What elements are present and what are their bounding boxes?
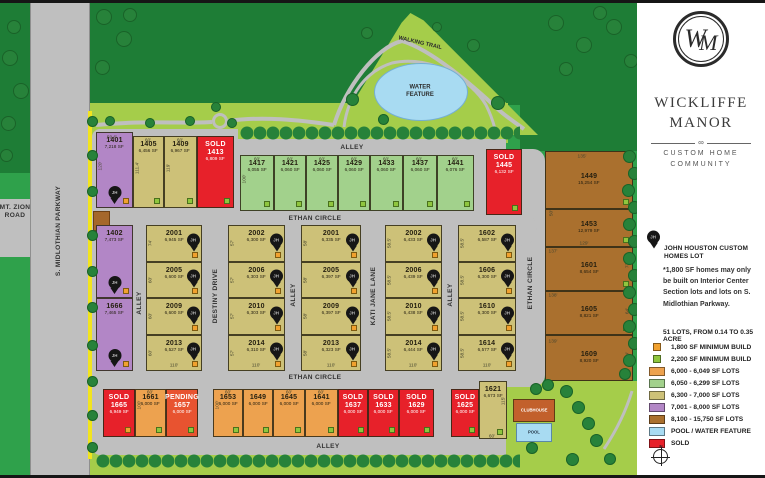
lot-square-footage: 6,577 SF bbox=[477, 348, 496, 353]
lot-2005[interactable]: 20056,600 SFJH bbox=[146, 262, 202, 298]
community-title-line1: WICKLIFFE bbox=[637, 95, 765, 112]
tree-icon bbox=[87, 266, 98, 277]
lot-number: 1653 bbox=[220, 394, 236, 402]
tree-icon bbox=[548, 15, 564, 31]
lot-dimension-label: 74' bbox=[147, 240, 152, 246]
min-build-marker-green bbox=[393, 201, 399, 207]
lot-dimension-label: 58' bbox=[302, 313, 307, 319]
lot-square-footage: 6,967 SF bbox=[171, 149, 190, 154]
lot-square-footage: 6,300 SF bbox=[477, 275, 496, 280]
john-houston-pin-icon: JH bbox=[187, 306, 200, 324]
lot-number: 2001 bbox=[323, 230, 339, 238]
min-build-marker-green bbox=[358, 427, 364, 433]
lot-1421[interactable]: 14216,060 SF bbox=[274, 155, 306, 211]
lot-1625[interactable]: SOLD16256,000 SF bbox=[451, 389, 479, 437]
legend-swatch bbox=[649, 379, 665, 388]
min-build-marker-green bbox=[464, 201, 470, 207]
min-build-marker-green bbox=[296, 201, 302, 207]
john-houston-pin-icon: JH bbox=[427, 270, 440, 288]
pin-tail bbox=[504, 245, 512, 251]
street-label: ETHAN CIRCLE bbox=[289, 214, 342, 221]
tree-icon bbox=[87, 150, 98, 161]
legend-item: 6,050 - 6,299 SF LOTS bbox=[649, 377, 761, 389]
pin-tail bbox=[504, 355, 512, 361]
lot-square-footage: 8,920 SF bbox=[579, 359, 598, 364]
street-label: ETHAN CIRCLE bbox=[289, 373, 342, 380]
john-houston-pin-icon: JH bbox=[346, 233, 359, 251]
lot-square-footage: 6,000 SF bbox=[248, 402, 267, 407]
legend-item-label: 6,300 - 7,000 SF LOTS bbox=[671, 392, 740, 399]
lot-2006[interactable]: 20066,439 SFJH bbox=[385, 262, 442, 298]
tree-icon bbox=[432, 22, 442, 32]
lot-square-footage: 6,000 SF bbox=[407, 410, 426, 415]
lot-number: 2014 bbox=[248, 340, 264, 348]
wickliffe-manor-site-plan: WATER FEATURE WALKING TRAIL CLUBHOUSE PO… bbox=[0, 0, 765, 478]
lot-2006[interactable]: 20066,303 SFJH bbox=[228, 262, 285, 298]
lot-square-footage: 6,303 SF bbox=[247, 275, 266, 280]
min-build-marker-orange bbox=[275, 252, 281, 258]
min-build-marker-orange bbox=[506, 288, 512, 294]
min-build-marker-green bbox=[187, 198, 193, 204]
forest-area-right bbox=[520, 99, 637, 151]
lot-1433[interactable]: 14336,060 SF bbox=[370, 155, 403, 211]
lot-number: 2014 bbox=[405, 340, 421, 348]
lot-dimension-label: 58.5' bbox=[386, 275, 391, 285]
lot-1453[interactable]: 145312,979 SF bbox=[545, 209, 633, 247]
lot-status-label: SOLD bbox=[406, 394, 427, 402]
lot-1413[interactable]: SOLD14136,809 SF bbox=[197, 136, 234, 208]
lot-square-footage: 6,444 SF bbox=[404, 348, 423, 353]
lot-number: 2010 bbox=[405, 303, 421, 311]
tree-icon bbox=[87, 340, 98, 351]
lot-1402[interactable]: 14027,473 SFJH bbox=[96, 225, 133, 298]
min-build-marker-orange bbox=[125, 427, 131, 433]
lot-dimension-label: 58' bbox=[302, 350, 307, 356]
min-build-marker-green bbox=[497, 429, 503, 435]
tree-icon bbox=[0, 149, 13, 162]
min-build-marker-green bbox=[427, 201, 433, 207]
lot-1649[interactable]: 16496,000 SF bbox=[243, 389, 273, 437]
lot-square-footage: 6,060 SF bbox=[344, 168, 363, 173]
lot-number: 1649 bbox=[250, 394, 266, 402]
tree-icon bbox=[628, 201, 638, 214]
tree-icon bbox=[185, 116, 195, 126]
min-build-marker-orange bbox=[351, 361, 357, 367]
lot-2010[interactable]: 20106,303 SFJH bbox=[228, 298, 285, 335]
water-feature-label: WATER FEATURE bbox=[401, 83, 438, 98]
min-build-marker-orange bbox=[506, 252, 512, 258]
tree-icon bbox=[1, 116, 16, 131]
tree-icon bbox=[628, 303, 638, 316]
legend-swatch bbox=[649, 391, 665, 400]
tree-icon bbox=[491, 96, 505, 110]
lot-2002[interactable]: 20026,433 SFJH bbox=[385, 225, 442, 262]
lot-dimension-label: 50' bbox=[548, 210, 553, 216]
lot-square-footage: 6,000 SF bbox=[141, 402, 160, 407]
min-build-marker-orange bbox=[275, 325, 281, 331]
tree-icon bbox=[623, 218, 636, 231]
lot-dimension-label: 58.5' bbox=[386, 348, 391, 358]
lot-dimension-label: 58.5' bbox=[386, 311, 391, 321]
legend-item: SOLD bbox=[649, 437, 761, 449]
lot-2009[interactable]: 20096,600 SFJH bbox=[146, 298, 202, 335]
lot-1666[interactable]: 16667,465 SFJH bbox=[96, 298, 133, 371]
lot-dimension-label: 58.5' bbox=[459, 348, 464, 358]
street-label: KATI JANE LANE bbox=[369, 267, 376, 325]
clubhouse: CLUBHOUSE bbox=[513, 399, 555, 422]
lot-dimension-label: 57' bbox=[229, 313, 234, 319]
lot-square-footage: 6,587 SF bbox=[477, 238, 496, 243]
john-houston-pin-icon: JH bbox=[108, 349, 121, 367]
lot-1429[interactable]: 14296,060 SF bbox=[338, 155, 370, 211]
lot-1629[interactable]: SOLD16296,000 SF bbox=[399, 389, 434, 437]
min-build-marker-green bbox=[154, 198, 160, 204]
tree-icon bbox=[227, 118, 237, 128]
pin-tail bbox=[273, 355, 281, 361]
lot-square-footage: 6,132 SF bbox=[494, 170, 513, 175]
lot-1645[interactable]: 16456,000 SF bbox=[273, 389, 305, 437]
lot-dimension-label: 110' bbox=[409, 362, 418, 367]
legend-item-label: 1,800 SF MINIMUM BUILD bbox=[671, 344, 751, 351]
tree-icon bbox=[622, 184, 635, 197]
lot-number: 2001 bbox=[166, 230, 182, 238]
lot-number: 1661 bbox=[142, 394, 158, 402]
lot-square-footage: 8,821 SF bbox=[579, 314, 598, 319]
lot-dimension-label: 58.5' bbox=[459, 275, 464, 285]
tree-icon bbox=[87, 186, 98, 197]
min-build-marker-orange bbox=[432, 252, 438, 258]
lot-2001[interactable]: 20016,945 SFJH bbox=[146, 225, 202, 262]
lot-square-footage: 6,076 SF bbox=[446, 168, 465, 173]
john-houston-pin-icon: JH bbox=[427, 306, 440, 324]
lot-1449[interactable]: 144915,254 SF bbox=[545, 151, 633, 209]
lot-1661[interactable]: 16616,000 SF bbox=[135, 389, 166, 437]
min-build-marker-orange bbox=[192, 288, 198, 294]
tree-icon bbox=[87, 410, 98, 421]
lot-number: 2009 bbox=[166, 303, 182, 311]
street-label: MT. ZION bbox=[0, 203, 30, 210]
lot-1653[interactable]: 16536,000 SF bbox=[213, 389, 243, 437]
tree-icon bbox=[542, 379, 554, 391]
lot-2001[interactable]: 20016,335 SFJH bbox=[301, 225, 361, 262]
lot-square-footage: 15,254 SF bbox=[578, 181, 600, 186]
lot-1601[interactable]: 16018,654 SF bbox=[545, 247, 633, 291]
lot-dimension-label: 100' bbox=[136, 401, 141, 410]
lot-dimension-label: 110' bbox=[252, 362, 261, 367]
lot-1610[interactable]: 16106,300 SFJH bbox=[458, 298, 516, 335]
lot-2009[interactable]: 20096,397 SFJH bbox=[301, 298, 361, 335]
min-build-marker-green bbox=[512, 205, 518, 211]
lot-square-footage: 6,000 SF bbox=[343, 410, 362, 415]
tree-icon bbox=[593, 6, 607, 20]
street-label: ALLEY bbox=[289, 283, 296, 306]
lot-square-footage: 6,438 SF bbox=[404, 311, 423, 316]
pin-tail bbox=[349, 318, 357, 324]
legend-item: 8,100 - 15,750 SF LOTS bbox=[649, 413, 761, 425]
community-subtitle-line1: CUSTOM HOME bbox=[637, 149, 765, 160]
john-houston-pin-icon: JH bbox=[187, 343, 200, 361]
lot-2005[interactable]: 20056,397 SFJH bbox=[301, 262, 361, 298]
pin-tail bbox=[430, 282, 438, 288]
lot-dimension-label: 60' bbox=[287, 156, 293, 161]
tree-icon bbox=[87, 230, 98, 241]
street-label: ALLEY bbox=[135, 291, 142, 314]
lot-1445[interactable]: SOLD14456,132 SF bbox=[486, 149, 522, 215]
legend-item-label: SOLD bbox=[671, 440, 689, 447]
pin-tail bbox=[430, 318, 438, 324]
lot-square-footage: 6,300 SF bbox=[477, 311, 496, 316]
john-houston-pin-icon: JH bbox=[346, 270, 359, 288]
lot-dimension-label: 58.5' bbox=[459, 311, 464, 321]
min-build-marker-orange bbox=[351, 325, 357, 331]
lot-square-footage: 8,654 SF bbox=[579, 270, 598, 275]
tree-icon bbox=[95, 60, 110, 75]
lot-square-footage: 6,527 SF bbox=[164, 348, 183, 353]
lot-dimension-label: 60' bbox=[319, 156, 325, 161]
min-build-marker-orange bbox=[123, 198, 129, 204]
pin-tail bbox=[430, 355, 438, 361]
min-build-marker-green bbox=[328, 427, 334, 433]
lot-dimension-label: 58' bbox=[302, 277, 307, 283]
pin-tail bbox=[504, 318, 512, 324]
pin-tail bbox=[190, 355, 198, 361]
tree-icon bbox=[96, 9, 112, 25]
lot-square-footage: 6,000 SF bbox=[455, 410, 474, 415]
min-build-marker-orange bbox=[506, 325, 512, 331]
lot-dimension-label: 60' bbox=[351, 156, 357, 161]
tree-icon bbox=[628, 337, 638, 350]
tree-icon bbox=[346, 93, 359, 106]
john-houston-pin-icon: JH bbox=[270, 306, 283, 324]
lot-number: 2005 bbox=[323, 267, 339, 275]
legend: 1,800 SF MINIMUM BUILD2,200 SF MINIMUM B… bbox=[649, 341, 761, 449]
lot-square-footage: 6,060 SF bbox=[280, 168, 299, 173]
lot-status-label: SOLD bbox=[455, 394, 476, 402]
lot-dimension-label: 58.5' bbox=[386, 238, 391, 248]
lot-dimension-label: 60' bbox=[147, 350, 152, 356]
pin-tail bbox=[111, 288, 119, 294]
lot-1641[interactable]: 16416,000 SF bbox=[305, 389, 338, 437]
min-build-marker-green bbox=[224, 198, 230, 204]
lot-number: 1605 bbox=[581, 306, 597, 314]
tree-icon bbox=[623, 354, 636, 367]
lot-square-footage: 6,310 SF bbox=[247, 348, 266, 353]
lot-number: 2009 bbox=[323, 303, 339, 311]
lot-square-footage: 6,397 SF bbox=[321, 275, 340, 280]
lot-number: 1449 bbox=[581, 173, 597, 181]
street-label: ALLEY bbox=[316, 442, 339, 449]
pin-tail bbox=[430, 245, 438, 251]
lot-number: 1614 bbox=[479, 340, 495, 348]
min-build-marker-orange bbox=[192, 252, 198, 258]
pin-tail bbox=[349, 355, 357, 361]
legend-item: 6,300 - 7,000 SF LOTS bbox=[649, 389, 761, 401]
tree-icon bbox=[624, 54, 637, 68]
lot-dimension-label: 57' bbox=[229, 350, 234, 356]
tree-icon bbox=[623, 320, 636, 333]
john-houston-pin-icon: JH bbox=[501, 306, 514, 324]
lot-1637[interactable]: SOLD16376,000 SF bbox=[338, 389, 368, 437]
lot-status-label: SOLD bbox=[494, 154, 515, 162]
lot-dimension-label: 137' bbox=[549, 248, 558, 253]
john-houston-pin-icon: JH bbox=[108, 276, 121, 294]
tree-icon bbox=[13, 83, 29, 99]
legend-pin-row: JH JOHN HOUSTON CUSTOM HOMES LOT bbox=[647, 241, 765, 262]
tree-icon bbox=[604, 453, 616, 465]
min-build-marker-green bbox=[188, 427, 194, 433]
lot-dimension-label: 57' bbox=[229, 240, 234, 246]
min-build-marker-green bbox=[295, 427, 301, 433]
pool: POOL bbox=[516, 423, 552, 442]
lot-1425[interactable]: 14256,060 SF bbox=[306, 155, 338, 211]
lot-1605[interactable]: 16058,821 SF bbox=[545, 291, 633, 335]
monogram-w: W bbox=[685, 24, 707, 54]
lot-square-footage: 6,397 SF bbox=[321, 311, 340, 316]
community-subtitle-line2: COMMUNITY bbox=[637, 160, 765, 171]
lot-dimension-label: 138' bbox=[549, 292, 558, 297]
lot-square-footage: 6,300 SF bbox=[247, 238, 266, 243]
tree-icon bbox=[606, 19, 622, 35]
lot-2010[interactable]: 20106,438 SFJH bbox=[385, 298, 442, 335]
min-build-marker-green bbox=[360, 201, 366, 207]
lot-1621[interactable]: 16216,673 SF bbox=[479, 381, 507, 439]
lot-square-footage: 7,218 SF bbox=[105, 145, 124, 150]
lot-status-label: SOLD bbox=[109, 394, 130, 402]
legend-swatch bbox=[649, 427, 665, 436]
lot-1657[interactable]: PENDING16576,000 SF bbox=[166, 389, 198, 437]
info-panel: W M WICKLIFFE MANOR ∞ CUSTOM HOME COMMUN… bbox=[637, 3, 765, 475]
trail-loop bbox=[212, 113, 228, 129]
legend-item: 6,000 - 6,049 SF LOTS bbox=[649, 365, 761, 377]
min-build-marker-orange bbox=[351, 288, 357, 294]
pin-tail bbox=[190, 318, 198, 324]
john-houston-pin-icon: JH bbox=[187, 233, 200, 251]
pin-tail bbox=[349, 245, 357, 251]
lot-1602[interactable]: 16026,587 SFJH bbox=[458, 225, 516, 262]
min-build-marker-orange bbox=[123, 361, 129, 367]
lot-number: 1610 bbox=[479, 303, 495, 311]
lot-square-footage: 6,000 SF bbox=[312, 402, 331, 407]
monogram-m: M bbox=[699, 30, 717, 56]
min-build-marker-orange bbox=[123, 288, 129, 294]
tree-icon bbox=[105, 116, 115, 126]
lot-number: 1402 bbox=[106, 230, 122, 238]
street-label: ETHAN CIRCLE bbox=[526, 257, 533, 310]
lot-number: 1641 bbox=[313, 394, 329, 402]
lot-square-footage: 6,809 SF bbox=[206, 157, 225, 162]
john-houston-pin-icon: JH bbox=[501, 233, 514, 251]
lot-dimension-label: 100' bbox=[214, 401, 219, 410]
lot-number: 2006 bbox=[405, 267, 421, 275]
lot-dimension-label: 60' bbox=[383, 156, 389, 161]
lot-1606[interactable]: 16066,300 SFJH bbox=[458, 262, 516, 298]
tree-icon bbox=[559, 62, 573, 76]
lot-dimension-label: 110' bbox=[170, 362, 179, 367]
legend-swatch bbox=[649, 415, 665, 424]
legend-item: POOL / WATER FEATURE bbox=[649, 425, 761, 437]
john-houston-pin-icon: JH bbox=[647, 231, 660, 249]
john-houston-pin-icon: JH bbox=[108, 186, 121, 204]
build-restriction-note: *1,800 SF homes may only be built on Int… bbox=[663, 265, 761, 310]
tree-icon bbox=[530, 383, 542, 395]
lot-dimension-label: 60' bbox=[225, 389, 231, 394]
lot-dimension-label: 60' bbox=[177, 137, 183, 142]
min-build-marker-orange bbox=[432, 325, 438, 331]
lot-square-footage: 6,949 SF bbox=[109, 410, 128, 415]
lot-dimension-label: 60' bbox=[147, 277, 152, 283]
lot-number: 1621 bbox=[485, 386, 501, 394]
lot-1437[interactable]: 14376,060 SF bbox=[403, 155, 437, 211]
tree-icon bbox=[590, 434, 603, 447]
lot-dimension-label: 59.6' bbox=[107, 134, 117, 139]
min-build-marker-green bbox=[389, 427, 395, 433]
lot-1441[interactable]: 14416,076 SF bbox=[437, 155, 474, 211]
lot-dimension-label: 100' bbox=[241, 175, 246, 184]
lot-number: 1645 bbox=[281, 394, 297, 402]
lot-number: 1666 bbox=[106, 303, 122, 311]
min-build-marker-green bbox=[424, 427, 430, 433]
lot-1665[interactable]: SOLD16656,949 SF bbox=[103, 389, 135, 437]
lot-dimension-label: 60' bbox=[254, 156, 260, 161]
lot-number: 1602 bbox=[479, 230, 495, 238]
legend-item: 7,001 - 8,000 SF LOTS bbox=[649, 401, 761, 413]
tree-icon bbox=[619, 368, 631, 380]
lot-dimension-label: 60' bbox=[147, 389, 153, 394]
lot-dimension-label: 60' bbox=[286, 389, 292, 394]
bush-row-bottom bbox=[96, 454, 520, 468]
lot-square-footage: 6,600 SF bbox=[164, 275, 183, 280]
lot-square-footage: 12,979 SF bbox=[578, 229, 600, 234]
lot-dimension-label: 115' bbox=[500, 397, 505, 406]
min-build-marker-green bbox=[469, 427, 475, 433]
lot-number: 2010 bbox=[248, 303, 264, 311]
tree-icon bbox=[145, 118, 155, 128]
lot-square-footage: 6,000 SF bbox=[279, 402, 298, 407]
lot-dimension-label: 119' bbox=[165, 164, 170, 173]
lot-status-label: SOLD bbox=[205, 141, 226, 149]
tree-icon bbox=[378, 114, 389, 125]
lot-dimension-label: 60' bbox=[145, 137, 151, 142]
street-label: ALLEY bbox=[446, 283, 453, 306]
min-build-marker-orange bbox=[432, 361, 438, 367]
lot-2002[interactable]: 20026,300 SFJH bbox=[228, 225, 285, 262]
lot-1633[interactable]: SOLD16336,000 SF bbox=[368, 389, 399, 437]
tree-icon bbox=[2, 50, 18, 66]
tree-icon bbox=[87, 442, 98, 453]
lot-square-footage: 6,060 SF bbox=[312, 168, 331, 173]
tree-icon bbox=[566, 453, 579, 466]
lot-dimension-label: 57' bbox=[229, 277, 234, 283]
pin-tail bbox=[111, 198, 119, 204]
lot-dimension-label: 120' bbox=[97, 162, 102, 171]
site-plan-map: WATER FEATURE WALKING TRAIL CLUBHOUSE PO… bbox=[0, 3, 637, 475]
lot-square-footage: 6,060 SF bbox=[377, 168, 396, 173]
legend-swatch bbox=[649, 367, 665, 376]
lot-square-footage: 6,000 SF bbox=[172, 410, 191, 415]
lot-status-label: SOLD bbox=[343, 394, 364, 402]
lot-square-footage: 6,000 SF bbox=[218, 402, 237, 407]
tree-icon bbox=[576, 37, 592, 53]
john-houston-pin-icon: JH bbox=[501, 343, 514, 361]
john-houston-pin-icon: JH bbox=[427, 343, 440, 361]
lot-number: 2002 bbox=[405, 230, 421, 238]
john-houston-pin-icon: JH bbox=[427, 233, 440, 251]
lot-square-footage: 6,335 SF bbox=[321, 238, 340, 243]
tree-icon bbox=[572, 401, 585, 414]
tree-icon bbox=[116, 31, 132, 47]
min-build-marker-green bbox=[263, 427, 269, 433]
legend-item: 1,800 SF MINIMUM BUILD bbox=[649, 341, 761, 353]
